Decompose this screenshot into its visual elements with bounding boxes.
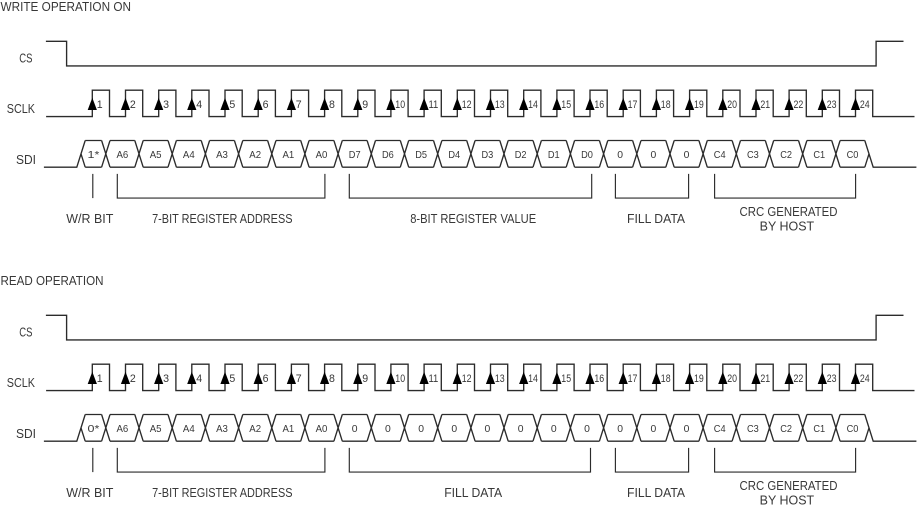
svg-text:CS: CS xyxy=(19,325,32,339)
svg-text:D2: D2 xyxy=(515,150,527,161)
svg-text:8: 8 xyxy=(329,373,335,385)
svg-text:7: 7 xyxy=(296,99,302,111)
svg-text:3: 3 xyxy=(163,373,169,385)
svg-text:22: 22 xyxy=(794,99,804,111)
svg-text:0: 0 xyxy=(684,424,690,435)
svg-text:D6: D6 xyxy=(382,150,394,161)
svg-text:0: 0 xyxy=(485,424,491,435)
svg-text:0: 0 xyxy=(617,424,623,435)
svg-text:SDI: SDI xyxy=(16,427,36,441)
svg-text:A4: A4 xyxy=(183,424,195,435)
svg-text:SDI: SDI xyxy=(16,153,36,167)
svg-text:21: 21 xyxy=(760,373,770,385)
svg-text:W/R BIT: W/R BIT xyxy=(66,211,113,226)
svg-text:10: 10 xyxy=(395,99,405,111)
svg-text:24: 24 xyxy=(860,99,870,111)
svg-text:11: 11 xyxy=(429,373,439,385)
svg-text:0: 0 xyxy=(684,150,690,161)
svg-text:16: 16 xyxy=(594,373,604,385)
svg-text:3: 3 xyxy=(163,99,169,111)
svg-text:17: 17 xyxy=(628,373,638,385)
svg-text:0: 0 xyxy=(651,150,657,161)
svg-text:A3: A3 xyxy=(216,424,228,435)
svg-text:22: 22 xyxy=(794,373,804,385)
svg-text:5: 5 xyxy=(229,99,235,111)
svg-text:SCLK: SCLK xyxy=(7,102,36,116)
svg-text:6: 6 xyxy=(263,99,269,111)
svg-text:D7: D7 xyxy=(349,150,361,161)
svg-text:FILL DATA: FILL DATA xyxy=(627,485,685,500)
svg-text:0: 0 xyxy=(584,424,590,435)
svg-text:A5: A5 xyxy=(150,150,162,161)
svg-text:0: 0 xyxy=(551,424,557,435)
svg-text:7-BIT REGISTER ADDRESS: 7-BIT REGISTER ADDRESS xyxy=(152,211,293,226)
svg-text:A1: A1 xyxy=(283,150,295,161)
svg-text:A6: A6 xyxy=(117,424,129,435)
svg-text:16: 16 xyxy=(594,99,604,111)
svg-text:7-BIT REGISTER ADDRESS: 7-BIT REGISTER ADDRESS xyxy=(152,485,293,500)
svg-text:13: 13 xyxy=(495,99,505,111)
svg-text:A2: A2 xyxy=(249,150,261,161)
svg-text:19: 19 xyxy=(694,99,704,111)
svg-text:10: 10 xyxy=(395,373,405,385)
svg-text:C0: C0 xyxy=(847,424,859,435)
svg-text:14: 14 xyxy=(528,99,538,111)
svg-text:4: 4 xyxy=(196,373,202,385)
svg-text:23: 23 xyxy=(827,99,837,111)
svg-text:C0: C0 xyxy=(847,150,859,161)
svg-text:FILL DATA: FILL DATA xyxy=(627,211,685,226)
svg-text:A2: A2 xyxy=(249,424,261,435)
svg-text:W/R BIT: W/R BIT xyxy=(66,485,113,500)
svg-text:D1: D1 xyxy=(548,150,560,161)
svg-text:D5: D5 xyxy=(415,150,427,161)
svg-text:1: 1 xyxy=(97,99,103,111)
svg-text:C4: C4 xyxy=(714,424,726,435)
svg-text:C3: C3 xyxy=(747,424,759,435)
svg-text:0: 0 xyxy=(418,424,424,435)
svg-text:A0: A0 xyxy=(316,150,328,161)
svg-text:20: 20 xyxy=(727,99,737,111)
svg-text:19: 19 xyxy=(694,373,704,385)
svg-text:8-BIT REGISTER VALUE: 8-BIT REGISTER VALUE xyxy=(410,211,536,226)
svg-text:15: 15 xyxy=(561,373,571,385)
svg-text:D0: D0 xyxy=(581,150,593,161)
svg-text:20: 20 xyxy=(727,373,737,385)
svg-text:21: 21 xyxy=(760,99,770,111)
svg-text:C2: C2 xyxy=(780,150,792,161)
svg-text:A0: A0 xyxy=(316,424,328,435)
svg-text:0: 0 xyxy=(617,150,623,161)
svg-text:CS: CS xyxy=(19,51,32,65)
svg-text:FILL DATA: FILL DATA xyxy=(444,485,502,500)
svg-text:SCLK: SCLK xyxy=(7,376,36,390)
svg-text:C2: C2 xyxy=(780,424,792,435)
svg-text:0: 0 xyxy=(385,424,391,435)
svg-text:7: 7 xyxy=(296,373,302,385)
svg-text:12: 12 xyxy=(462,373,472,385)
svg-text:C1: C1 xyxy=(813,150,825,161)
svg-text:A4: A4 xyxy=(183,150,195,161)
svg-text:0: 0 xyxy=(651,424,657,435)
svg-text:12: 12 xyxy=(462,99,472,111)
svg-text:0: 0 xyxy=(518,424,524,435)
svg-text:15: 15 xyxy=(561,99,571,111)
svg-text:9: 9 xyxy=(362,373,368,385)
svg-text:24: 24 xyxy=(860,373,870,385)
svg-text:CRC GENERATED: CRC GENERATED xyxy=(740,478,838,493)
svg-text:2: 2 xyxy=(130,99,136,111)
svg-text:13: 13 xyxy=(495,373,505,385)
svg-text:A3: A3 xyxy=(216,150,228,161)
svg-text:C1: C1 xyxy=(813,424,825,435)
svg-text:WRITE OPERATION ON: WRITE OPERATION ON xyxy=(1,0,132,14)
svg-text:6: 6 xyxy=(263,373,269,385)
svg-text:1*: 1* xyxy=(88,150,100,161)
svg-text:11: 11 xyxy=(429,99,439,111)
svg-text:A6: A6 xyxy=(117,150,129,161)
svg-text:5: 5 xyxy=(229,373,235,385)
svg-text:14: 14 xyxy=(528,373,538,385)
svg-text:D4: D4 xyxy=(448,150,460,161)
svg-text:C3: C3 xyxy=(747,150,759,161)
svg-text:1: 1 xyxy=(97,373,103,385)
svg-text:9: 9 xyxy=(362,99,368,111)
svg-text:BY HOST: BY HOST xyxy=(760,219,815,234)
svg-text:0*: 0* xyxy=(88,424,100,435)
svg-text:CRC GENERATED: CRC GENERATED xyxy=(740,204,838,219)
svg-text:C4: C4 xyxy=(714,150,726,161)
svg-text:0: 0 xyxy=(352,424,358,435)
svg-text:4: 4 xyxy=(196,99,202,111)
svg-text:8: 8 xyxy=(329,99,335,111)
svg-text:BY HOST: BY HOST xyxy=(760,493,815,508)
svg-text:2: 2 xyxy=(130,373,136,385)
svg-text:0: 0 xyxy=(451,424,457,435)
svg-text:A1: A1 xyxy=(283,424,295,435)
svg-text:READ OPERATION: READ OPERATION xyxy=(1,273,104,288)
svg-text:18: 18 xyxy=(661,99,671,111)
svg-text:23: 23 xyxy=(827,373,837,385)
svg-text:17: 17 xyxy=(628,99,638,111)
svg-text:18: 18 xyxy=(661,373,671,385)
svg-text:A5: A5 xyxy=(150,424,162,435)
svg-text:D3: D3 xyxy=(482,150,494,161)
